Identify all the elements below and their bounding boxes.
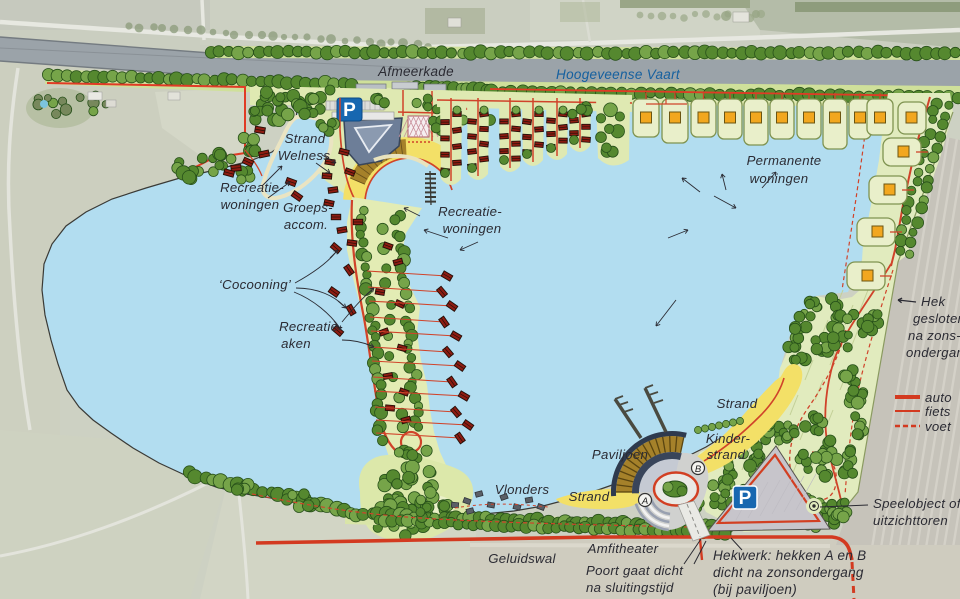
svg-text:gesloten: gesloten	[913, 311, 960, 326]
svg-text:Paviljoen: Paviljoen	[592, 447, 648, 462]
svg-text:na zons-: na zons-	[908, 328, 960, 343]
svg-text:strand: strand	[707, 447, 746, 462]
svg-text:woningen: woningen	[750, 171, 809, 186]
svg-text:A: A	[641, 496, 648, 507]
svg-text:Kinder-: Kinder-	[706, 431, 751, 446]
svg-text:Strand: Strand	[569, 489, 610, 504]
svg-text:Poort gaat dicht: Poort gaat dicht	[586, 563, 684, 578]
svg-text:fiets: fiets	[925, 404, 951, 419]
svg-text:Vlonders: Vlonders	[495, 482, 550, 497]
svg-text:Groeps-: Groeps-	[283, 200, 333, 215]
svg-text:woningen: woningen	[443, 221, 502, 236]
svg-text:Geluidswal: Geluidswal	[488, 551, 556, 566]
svg-text:‘Cocooning’: ‘Cocooning’	[219, 277, 292, 292]
svg-text:auto: auto	[925, 390, 952, 405]
svg-text:Recreatie-: Recreatie-	[279, 319, 343, 334]
svg-text:accom.: accom.	[284, 217, 328, 232]
svg-text:Permanente: Permanente	[747, 153, 822, 168]
svg-text:B: B	[695, 464, 702, 475]
svg-text:Hek: Hek	[921, 294, 946, 309]
svg-text:na sluitingstijd: na sluitingstijd	[586, 580, 674, 595]
svg-text:Hekwerk: hekken A en B: Hekwerk: hekken A en B	[713, 548, 866, 563]
svg-text:Strand: Strand	[717, 396, 758, 411]
svg-text:(bij paviljoen): (bij paviljoen)	[713, 582, 797, 597]
svg-text:dicht na zonsondergang: dicht na zonsondergang	[713, 565, 864, 580]
svg-text:Welness: Welness	[278, 148, 331, 163]
svg-text:Recreatie-: Recreatie-	[438, 204, 502, 219]
svg-text:uitzichttoren: uitzichttoren	[873, 513, 948, 528]
svg-text:P: P	[343, 100, 356, 121]
svg-text:Recreatie-: Recreatie-	[220, 180, 284, 195]
svg-text:Speelobject of: Speelobject of	[873, 496, 960, 511]
svg-text:Hoogeveense Vaart: Hoogeveense Vaart	[556, 67, 681, 82]
svg-text:Strand: Strand	[285, 131, 326, 146]
svg-text:ondergang: ondergang	[906, 345, 960, 360]
svg-text:woningen: woningen	[221, 197, 280, 212]
svg-text:P: P	[739, 488, 752, 509]
svg-text:aken: aken	[281, 336, 311, 351]
svg-text:voet: voet	[925, 419, 952, 434]
svg-text:Amfitheater: Amfitheater	[587, 541, 659, 556]
svg-text:Afmeerkade: Afmeerkade	[377, 64, 454, 79]
